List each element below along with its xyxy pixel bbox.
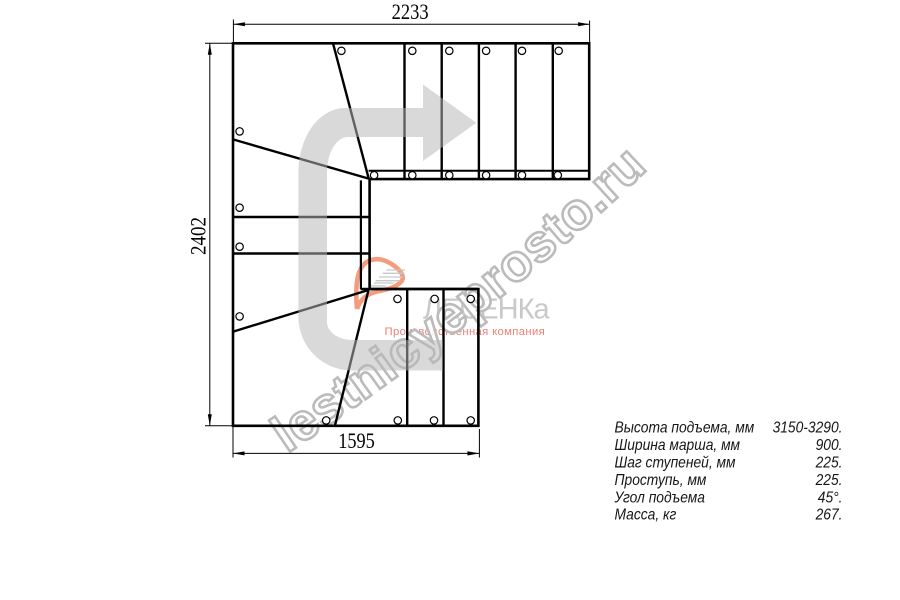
svg-text:Ширина марша, мм: Ширина марша, мм [614, 436, 740, 454]
svg-text:2233: 2233 [392, 0, 429, 24]
svg-text:Масса, кг: Масса, кг [614, 506, 676, 524]
svg-text:900.: 900. [816, 436, 843, 454]
svg-text:Угол подъема: Угол подъема [614, 489, 705, 507]
svg-text:Высота подъема, мм: Высота подъема, мм [614, 419, 754, 437]
svg-text:1595: 1595 [338, 428, 375, 453]
svg-text:2402: 2402 [186, 217, 211, 255]
svg-text:Шаг ступеней, мм: Шаг ступеней, мм [614, 454, 735, 472]
svg-text:225.: 225. [815, 471, 843, 489]
svg-text:225.: 225. [815, 454, 843, 472]
svg-text:267.: 267. [815, 506, 843, 524]
svg-text:Проступь, мм: Проступь, мм [614, 471, 706, 489]
svg-text:3150-3290.: 3150-3290. [773, 419, 843, 437]
svg-text:45°.: 45°. [818, 489, 843, 507]
